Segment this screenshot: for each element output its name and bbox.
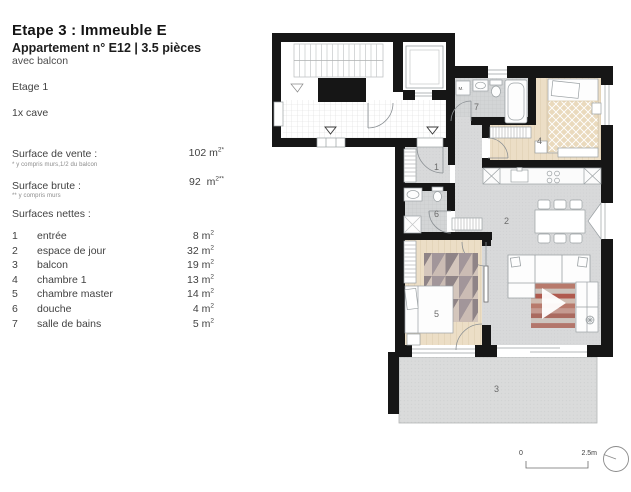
master-wardrobe bbox=[404, 241, 416, 283]
light-partition bbox=[484, 266, 488, 302]
room-label-3: 3 bbox=[494, 384, 499, 394]
scale-bar: 0 2.5m bbox=[519, 450, 597, 468]
duvet bbox=[548, 101, 598, 152]
washing-machine: M. bbox=[456, 81, 470, 95]
corridor-floor bbox=[283, 100, 450, 138]
pillow bbox=[405, 288, 418, 309]
room-label-2: 2 bbox=[504, 216, 509, 226]
apartment-entrance-door bbox=[417, 138, 443, 147]
bathroom-sink bbox=[473, 80, 488, 91]
scale-to: 2.5m bbox=[581, 450, 597, 457]
chair bbox=[538, 234, 550, 243]
master-bedroom-window bbox=[412, 345, 475, 357]
entree-wardrobe bbox=[404, 149, 416, 182]
chair bbox=[554, 234, 566, 243]
room-label-7: 7 bbox=[474, 102, 479, 112]
north-needle bbox=[604, 455, 616, 460]
room-label-5: 5 bbox=[434, 309, 439, 319]
chair bbox=[538, 200, 550, 209]
bathtub bbox=[505, 80, 527, 123]
kitchen-sink bbox=[511, 168, 528, 183]
elevator bbox=[406, 46, 443, 88]
throw-pillow bbox=[577, 257, 587, 267]
scale-from: 0 bbox=[519, 450, 523, 457]
kitchen-counter bbox=[483, 168, 601, 185]
balcony-sliding-door bbox=[497, 345, 587, 357]
plant-icon bbox=[586, 316, 594, 324]
chair bbox=[570, 200, 582, 209]
living-rug bbox=[531, 279, 575, 328]
throw-pillow bbox=[510, 257, 520, 267]
corridor-radiator bbox=[274, 102, 283, 126]
room-label-4: 4 bbox=[537, 136, 542, 146]
bathroom-window bbox=[488, 66, 507, 78]
bed-bench bbox=[558, 148, 598, 157]
chair bbox=[554, 200, 566, 209]
svg-text:M.: M. bbox=[459, 86, 464, 91]
floorplan-sheet: Etape 3 : Immeuble E Appartement n° E12 … bbox=[0, 0, 631, 492]
stairwell-door-left bbox=[317, 138, 345, 147]
dining-set bbox=[535, 200, 585, 243]
shower bbox=[404, 216, 421, 233]
room-label-6: 6 bbox=[434, 209, 439, 219]
bedroom1-wardrobe bbox=[490, 127, 531, 138]
elevator-door bbox=[415, 91, 432, 99]
dining-table bbox=[535, 210, 585, 233]
nightstand bbox=[407, 334, 420, 345]
nightstand bbox=[592, 103, 601, 114]
hallway-sideboard bbox=[452, 218, 482, 230]
north-indicator bbox=[604, 447, 629, 472]
pillow bbox=[551, 81, 579, 99]
washbasin bbox=[404, 188, 422, 201]
room-label-1: 1 bbox=[434, 162, 439, 172]
chair bbox=[570, 234, 582, 243]
floor-plan: M. bbox=[0, 0, 631, 492]
side-table bbox=[576, 282, 598, 332]
bedroom1-window bbox=[601, 85, 613, 125]
